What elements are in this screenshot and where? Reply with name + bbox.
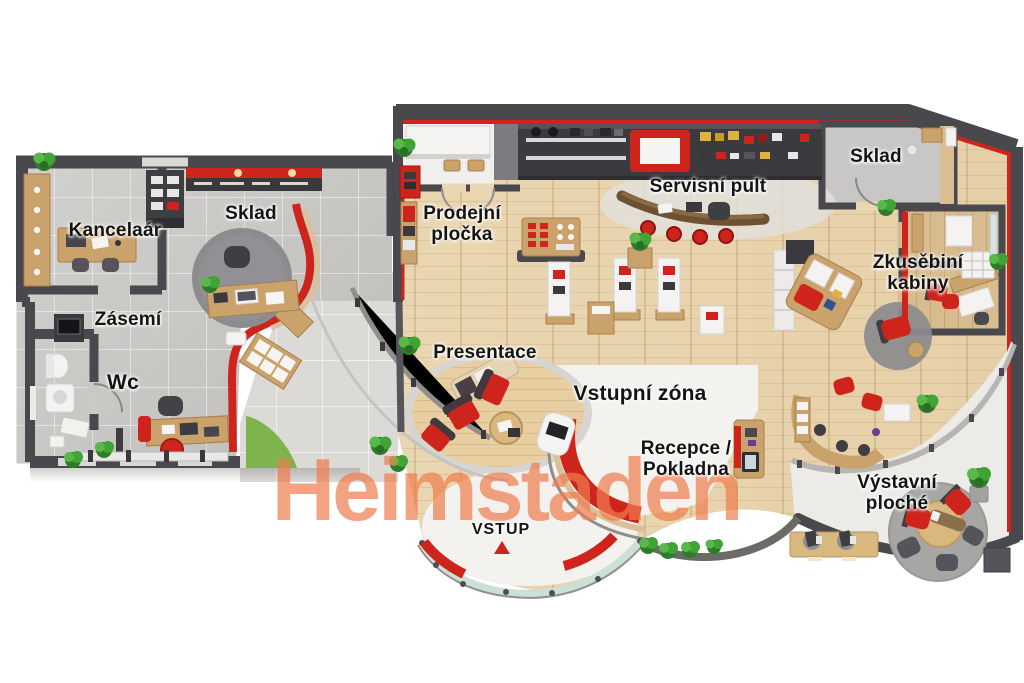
label-vystavni-plochy: Výstavní ploché — [827, 472, 967, 515]
label-kancelar: Kancelaár — [63, 220, 167, 241]
floorplan-canvas: Kancelaár Sklad Zásemí Wc Prodejní pločk… — [0, 0, 1024, 683]
label-recepce-pokladna: Recepce / Pokladna — [636, 438, 736, 481]
entrance-arrow-icon — [494, 541, 510, 554]
label-sklad-left: Sklad — [221, 203, 281, 224]
label-zasemi: Zásemí — [93, 309, 163, 330]
label-zkusebni-kabiny: Zkusěbiní kabiny — [868, 252, 968, 295]
label-sklad-right: Sklad — [846, 146, 906, 167]
label-servisni-pult: Servisní pult — [648, 176, 768, 197]
label-vstupni-zona: Vstupní zóna — [573, 382, 707, 406]
vestibule-floor — [402, 120, 494, 184]
label-prodejni-plocha: Prodejní pločka — [417, 203, 507, 246]
label-vstup: VSTUP — [471, 521, 531, 539]
label-presentace: Presentace — [430, 342, 540, 363]
label-wc: Wc — [103, 371, 143, 395]
